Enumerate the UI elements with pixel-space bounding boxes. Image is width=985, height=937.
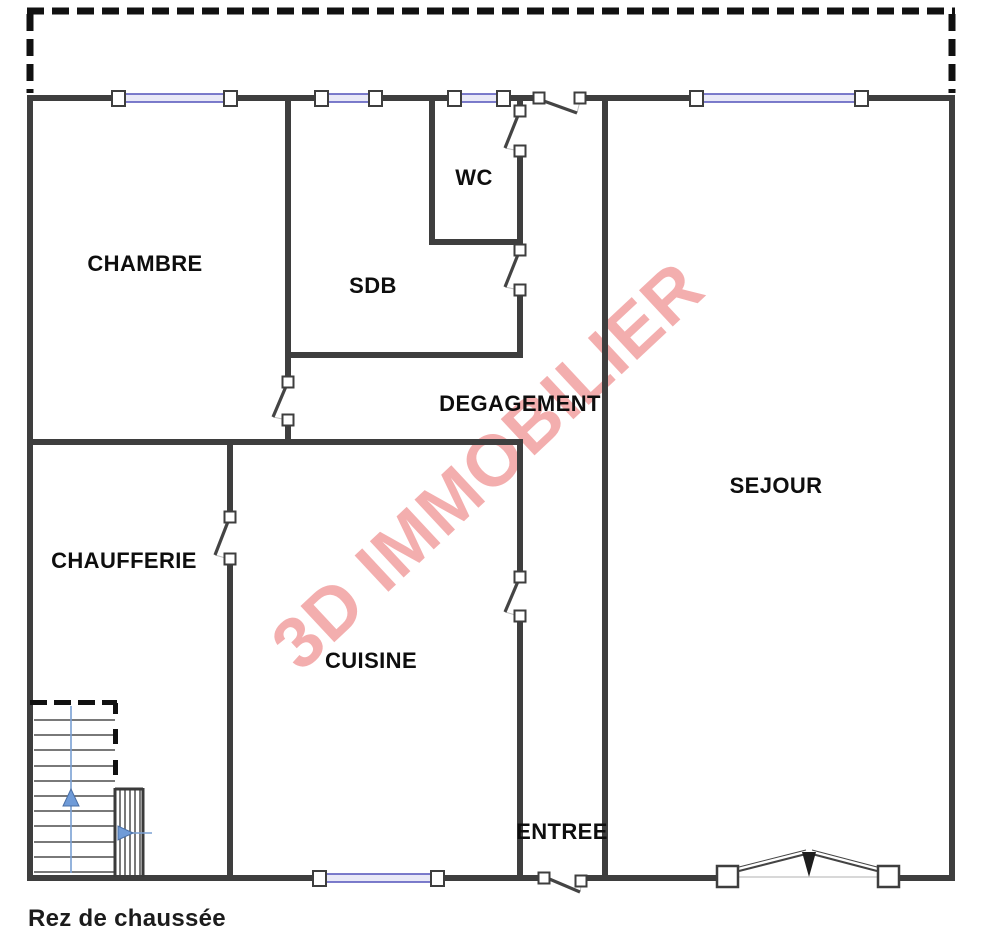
top-entry-door [541,100,577,113]
window [459,94,499,102]
cuisine-door [505,579,519,612]
floor-caption: Rez de chaussée [28,905,226,933]
floorplan-drawing [0,0,985,937]
wc-door [505,113,519,148]
french-door-jamb [717,866,738,887]
window [324,874,433,882]
french-door-jamb [878,866,899,887]
window [123,94,226,102]
sdb-door [505,252,519,287]
floorplan-canvas: 3D IMMOBILIER CHAMBRESDBWCDEGAGEMENTSEJO… [0,0,985,937]
window [701,94,857,102]
chambre-door [273,384,287,417]
chaufferie-door [215,519,229,555]
french-door-center [802,852,816,877]
window [326,94,371,102]
